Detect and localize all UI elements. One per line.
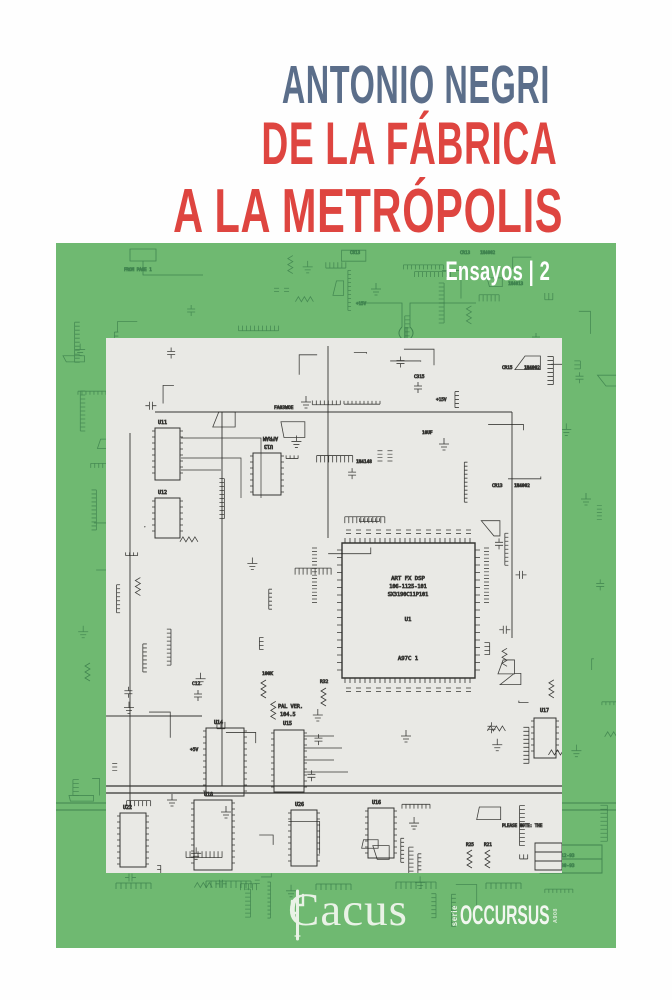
series-vertical-label: serie (450, 905, 459, 926)
chip-u1-sub: A97C 1 (398, 656, 418, 662)
chip-u15-label: U15 (283, 721, 292, 727)
diode-1n4002b-label: 1N4002 (514, 483, 530, 489)
rail-5v-label: +5V (190, 747, 199, 753)
schematic-drawing: U11 U12 AFRAM U13 FA03WOE ART FX DSP 106… (106, 338, 562, 873)
note-text: PLEASE NOTE: THE (502, 823, 543, 828)
cap-c315-label: C315 (414, 374, 425, 380)
band-label-c813: C813 (350, 250, 361, 255)
series-wordmark-block: serie OCCURSUS A908 (450, 900, 559, 931)
title-line-1: DE LA FÁBRICA (261, 109, 557, 178)
series-side-mark: A908 (553, 908, 559, 923)
chip-u22-label: U22 (123, 805, 132, 811)
diode-1n4148-label: 1N4148 (356, 459, 372, 465)
res-r21-label: R21 (484, 842, 492, 848)
res-r25-label: R25 (466, 842, 474, 848)
title-line-2: A LA METRÓPOLIS (173, 176, 563, 247)
cactus-icon (289, 887, 306, 941)
chip-u13-label: U13 (264, 443, 273, 449)
chip-u16-label: U16 (372, 800, 381, 806)
pal-ver-value: 104.5 (280, 712, 296, 718)
band-label-cr13: CR13 (460, 250, 471, 255)
chip-afram-label: AFRAM (263, 435, 278, 441)
chip-u17-label: U17 (540, 708, 549, 714)
chip-u1-line3: SX3190C11P101 (388, 592, 429, 598)
rail-15v-label: +15V (436, 397, 447, 403)
res-r32-label: R32 (320, 679, 329, 685)
cap-c12-label: C12 (192, 681, 201, 687)
chip-u26-label: U26 (295, 802, 304, 808)
book-cover: ANTONIO NEGRI DE LA FÁBRICA A LA METRÓPO… (0, 0, 672, 1000)
schematic-panel: U11 U12 AFRAM U13 FA03WOE ART FX DSP 106… (106, 338, 562, 873)
band-label-15v: +15V (356, 301, 367, 306)
diode-cr15-label: CR15 (502, 365, 513, 371)
chip-u11-label: U11 (158, 420, 167, 426)
series-number-label: Ensayos | 2 (445, 256, 550, 287)
chip-u1-line2: 106-1125-101 (389, 584, 426, 590)
chip-u1-line1: ART FX DSP (391, 576, 425, 582)
chip-u12-label: U12 (158, 490, 167, 496)
chip-u1-ref: U1 (405, 617, 412, 623)
green-band: FROM PAGE 1 C813 CR13 1N4002 1N4013 22UF… (56, 243, 616, 948)
band-label-from-page: FROM PAGE 1 (124, 267, 152, 272)
cap-10uf-label: 10UF (422, 430, 433, 436)
res-100k-label: 100K (262, 671, 273, 677)
diode-1n4002-label: 1N4002 (524, 365, 540, 371)
series-wordmark: OCCURSUS (460, 900, 550, 931)
diode-cr13-label: CR13 (492, 483, 503, 489)
publisher-logo: Cac us (288, 887, 408, 934)
band-label-1n4002: 1N4002 (480, 250, 496, 255)
author-name: ANTONIO NEGRI (282, 54, 550, 116)
pal-ver-label: PAL VER. (278, 704, 303, 710)
publisher-text-post: us (364, 887, 408, 934)
net-fa03woe-label: FA03WOE (274, 405, 294, 411)
